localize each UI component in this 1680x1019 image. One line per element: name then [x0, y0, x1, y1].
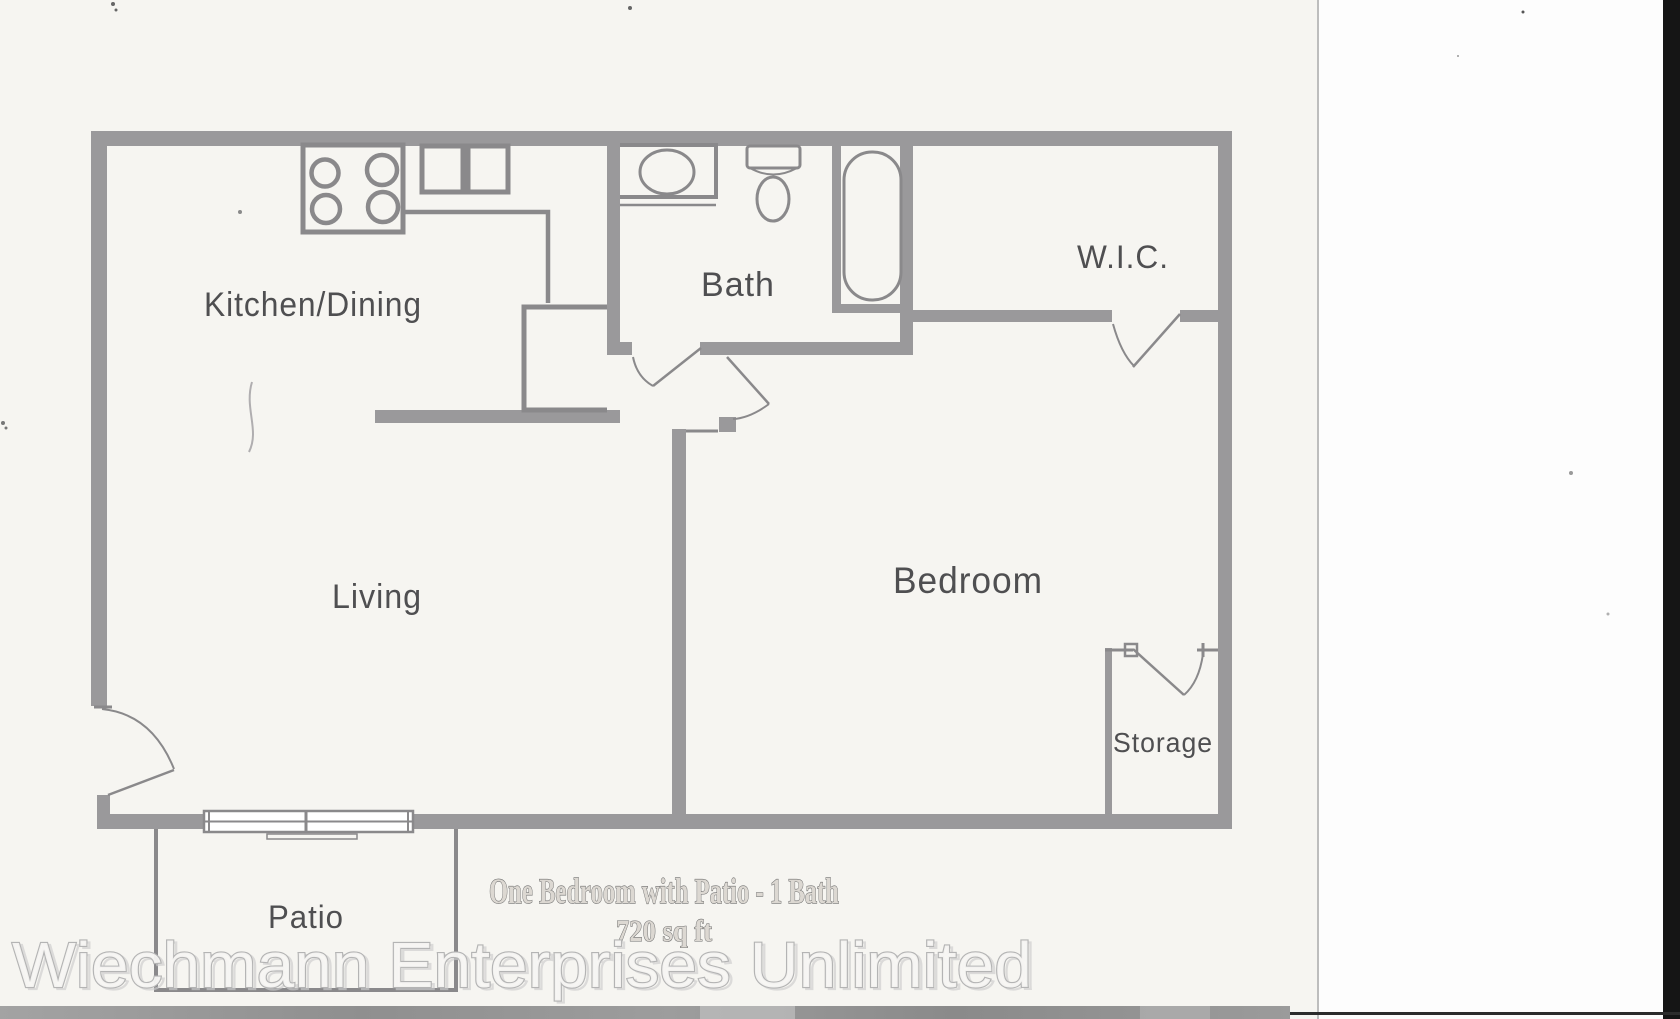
room-label-wic: W.I.C.: [1077, 239, 1169, 275]
watermark-text: Wiechmann Enterprises Unlimited: [12, 929, 1032, 1001]
pantry-icon: [524, 307, 607, 410]
scanner-band-highlight: [700, 1006, 795, 1019]
bath-door-icon: [633, 348, 701, 386]
scan-bottom-edge-line: [1290, 1012, 1680, 1015]
floor-plan-scan: Kitchen/Dining Bath W.I.C. Living Bedroo…: [0, 0, 1680, 1019]
toilet-icon: [747, 146, 800, 221]
room-label-storage: Storage: [1113, 727, 1213, 758]
entry-door-icon: [94, 707, 174, 795]
room-label-kitchen-dining: Kitchen/Dining: [204, 286, 422, 324]
room-label-living: Living: [332, 578, 422, 616]
caption-title: One Bedroom with Patio - 1 Bath: [489, 871, 839, 911]
walls: [91, 131, 1232, 829]
watermark: Wiechmann Enterprises Unlimited Wiechman…: [12, 929, 1035, 1003]
room-label-bedroom: Bedroom: [893, 560, 1043, 601]
scanner-band-highlight: [1140, 1006, 1210, 1019]
room-label-bath: Bath: [701, 266, 775, 304]
bathtub-icon: [844, 152, 901, 300]
kitchen-sink-icon: [422, 146, 508, 192]
storage-door-icon: [1105, 643, 1218, 695]
bathroom-sink-icon: [620, 145, 716, 205]
floor-plan-drawing: Kitchen/Dining Bath W.I.C. Living Bedroo…: [0, 0, 1680, 1019]
sliding-patio-door-icon: [204, 811, 413, 839]
counter-icon: [403, 212, 548, 303]
wic-door-icon: [1113, 314, 1180, 367]
stove-icon: [303, 145, 403, 232]
scanner-bottom-band: [0, 1006, 1290, 1019]
